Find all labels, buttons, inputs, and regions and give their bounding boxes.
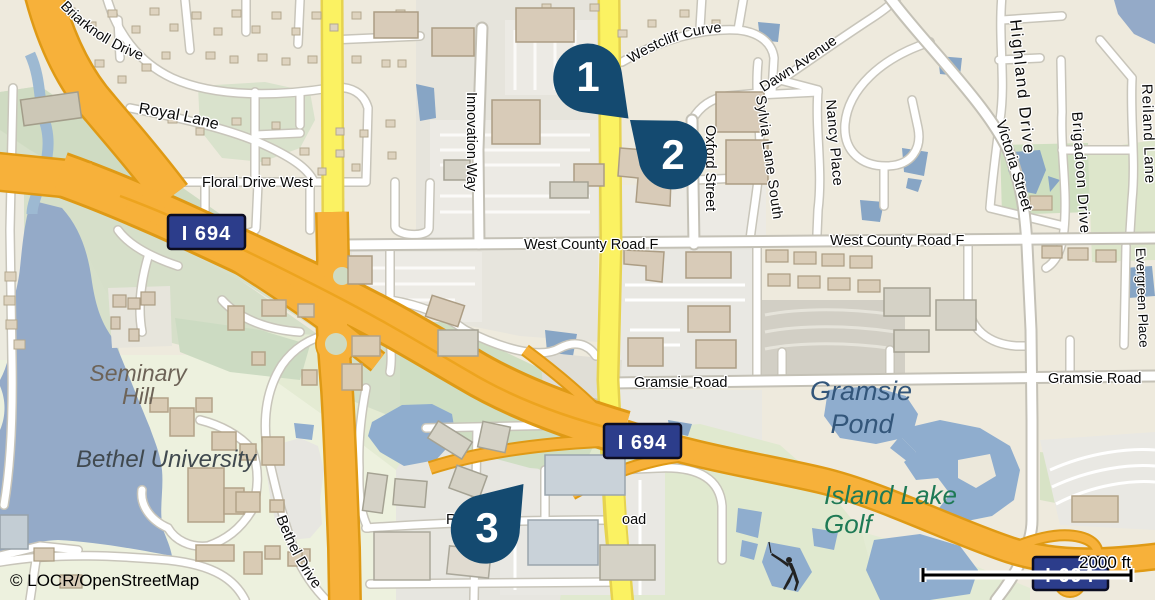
- svg-text:West County Road F: West County Road F: [524, 237, 658, 253]
- svg-text:Gramsie Road: Gramsie Road: [634, 375, 727, 391]
- svg-text:Golf: Golf: [824, 509, 874, 539]
- svg-text:Pond: Pond: [830, 409, 894, 439]
- svg-text:Innovation Way: Innovation Way: [463, 92, 479, 192]
- svg-text:2: 2: [661, 131, 684, 178]
- svg-text:Hill: Hill: [122, 383, 155, 409]
- svg-text:Floral Drive West: Floral Drive West: [202, 175, 313, 191]
- svg-text:2000 ft: 2000 ft: [1079, 553, 1131, 572]
- svg-text:Gramsie: Gramsie: [810, 376, 912, 406]
- svg-text:I 694: I 694: [182, 223, 231, 245]
- svg-text:Oxford Street: Oxford Street: [702, 125, 718, 211]
- svg-text:I 694: I 694: [618, 432, 667, 454]
- svg-text:© LOCR/OpenStreetMap: © LOCR/OpenStreetMap: [10, 571, 199, 590]
- svg-text:Bethel University: Bethel University: [76, 446, 258, 473]
- svg-text:3: 3: [475, 504, 498, 551]
- svg-text:Island Lake: Island Lake: [824, 480, 957, 510]
- svg-text:West County Road F: West County Road F: [830, 233, 964, 249]
- svg-text:1: 1: [576, 53, 599, 100]
- svg-text:Gramsie Road: Gramsie Road: [1048, 371, 1141, 387]
- svg-text:oad: oad: [622, 512, 646, 528]
